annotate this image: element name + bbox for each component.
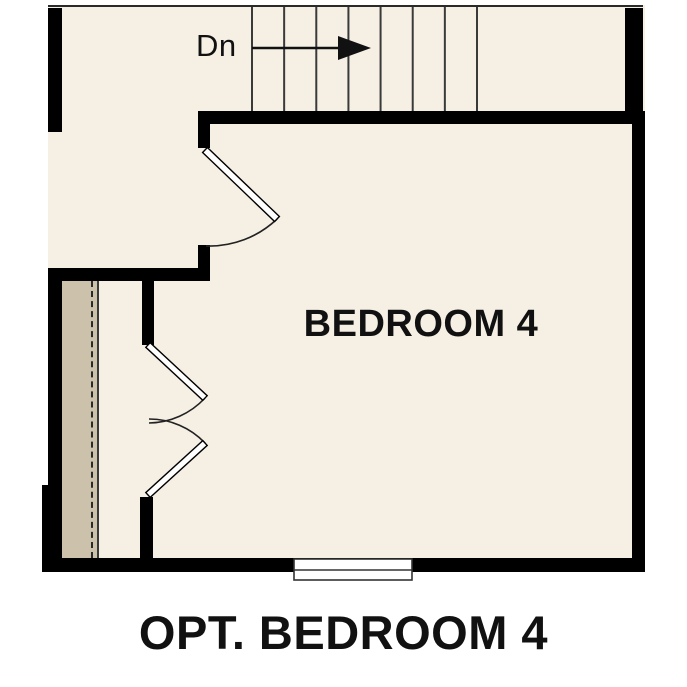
entry-door [203,148,280,247]
room-label-bedroom4: BEDROOM 4 [211,303,631,346]
window [294,559,412,580]
plan-caption: OPT. BEDROOM 4 [0,605,687,660]
right-arrow-icon [252,36,371,60]
closet-door-panel-upper [146,343,207,401]
closet-door-panel-lower [146,441,207,498]
closet-double-door [146,343,207,498]
floor-plan: Dn BEDROOM 4 OPT. BEDROOM 4 [0,0,687,687]
stair-treads [252,7,477,111]
stairs-direction-label: Dn [196,28,237,64]
entry-door-panel [203,148,280,222]
